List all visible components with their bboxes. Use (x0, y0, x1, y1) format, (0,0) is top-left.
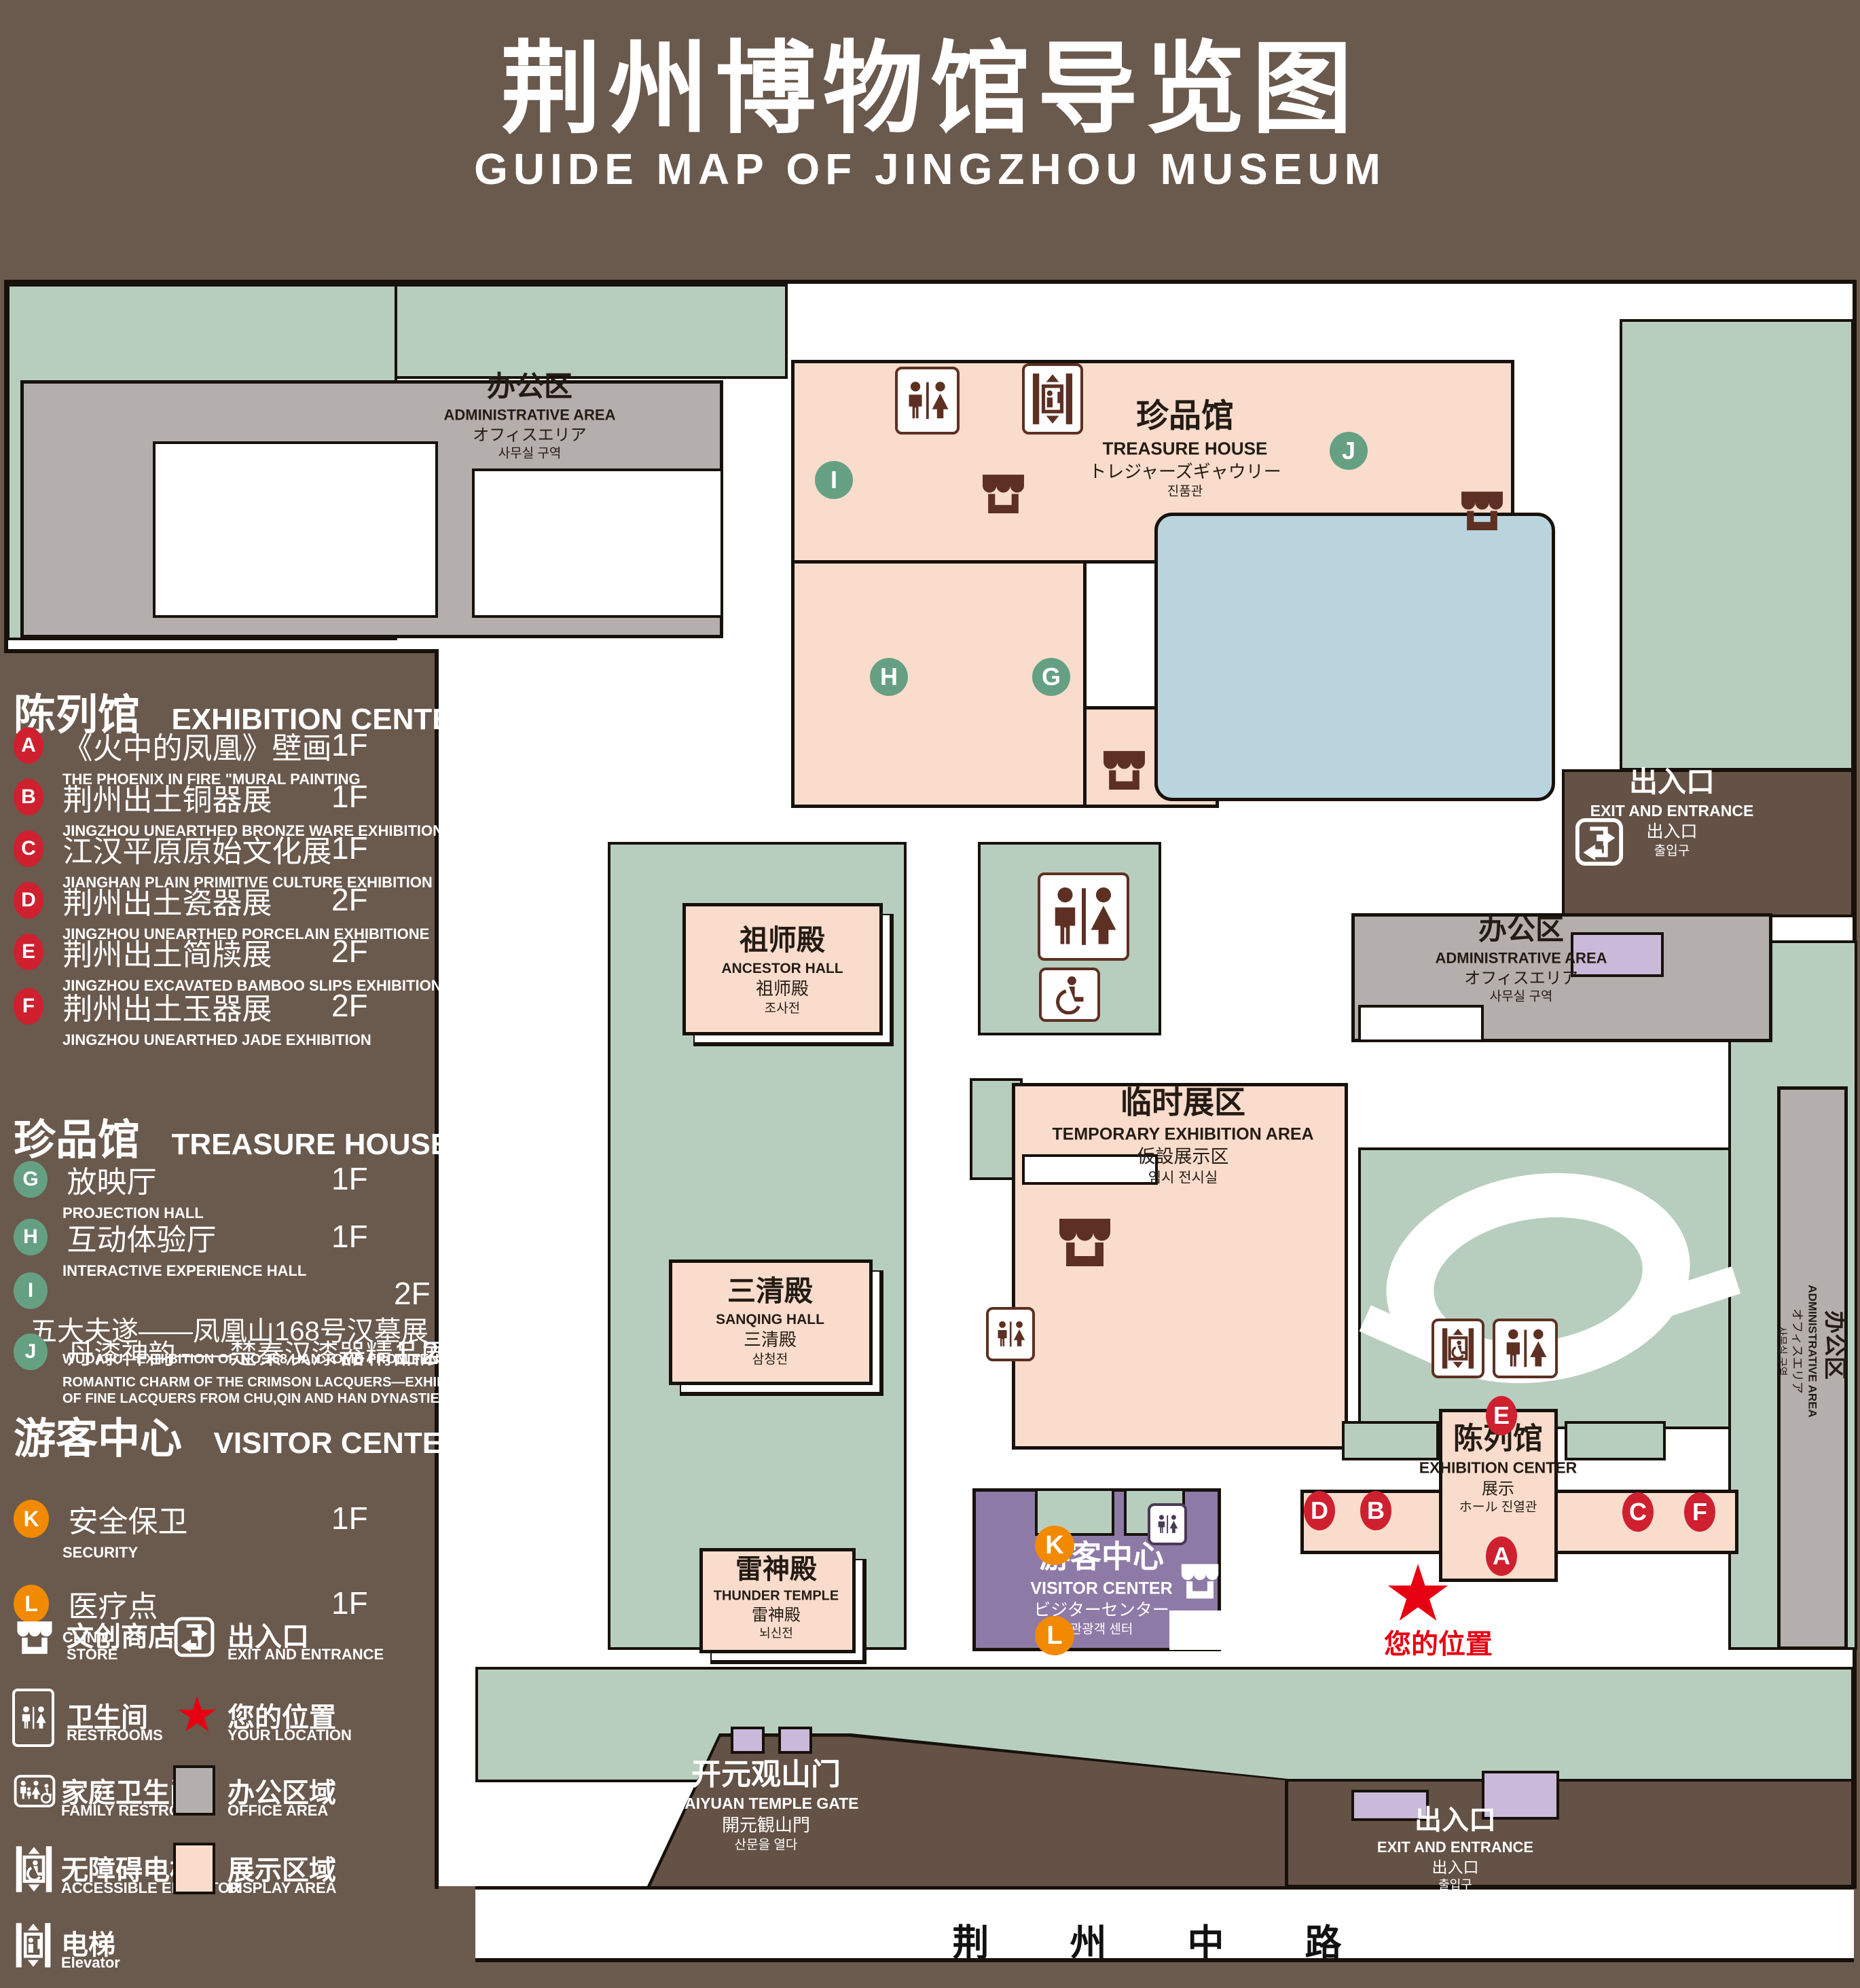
store-icon (1457, 489, 1508, 533)
item-zh: 放映厅 (67, 1166, 156, 1199)
label-sanqing-hall: 三清殿 SANQING HALL 三清殿 삼청전 (716, 1273, 824, 1368)
label-en: KAIYUAN TEMPLE GATE (673, 1794, 858, 1814)
restrooms-icon (12, 1689, 54, 1747)
item-floor: 1-2F (394, 1335, 458, 1372)
accessible-elevator-icon (14, 1841, 54, 1897)
label-ancestor-hall: 祖师殿 ANCESTOR HALL 祖师殿 조사전 (721, 922, 843, 1017)
label-jp: オフィスエリア (1436, 968, 1607, 989)
item-floor: 2F (331, 933, 368, 970)
item-zh: 丹漆神韵——楚秦汉漆器精品展 (67, 1340, 447, 1369)
marker-f: F (1684, 1492, 1715, 1532)
badge-i: I (14, 1272, 48, 1309)
marker-e: E (1486, 1396, 1517, 1435)
label-kr: ホール 진열관 (1419, 1500, 1578, 1517)
label-zh: 雷神殿 (714, 1552, 839, 1587)
label-en: ADMINISTRATIVE AREA (444, 405, 616, 425)
label-en: ADMINISTRATIVE AREA (1804, 1285, 1819, 1418)
legend-item-j: J 丹漆神韵——楚秦汉漆器精品展 1-2F ROMANTIC CHARM OF … (14, 1332, 462, 1407)
symbol-store-en: STORE (67, 1646, 117, 1663)
item-zh: 江汉平原原始文化展 (62, 835, 331, 868)
marker-c: C (1622, 1492, 1654, 1532)
legend-section-visitor-center: 游客中心 VISITOR CENTER (14, 1404, 464, 1465)
item-zh: 荆州出土简牍展 (62, 938, 272, 972)
label-en: SANQING HALL (716, 1310, 824, 1328)
label-zh: 办公区 (444, 368, 616, 405)
label-kr: 조사전 (721, 1001, 843, 1018)
exhibition-green-patch-right (1565, 1421, 1666, 1460)
item-floor: 1F (331, 1500, 368, 1536)
label-kr: 출입구 (1377, 1878, 1533, 1894)
symbol-elevator-en: Elevator (61, 1954, 120, 1972)
accessible-elevator-glyph (1439, 1326, 1477, 1371)
label-en: THUNDER TEMPLE (714, 1587, 839, 1605)
elevator-icon (1022, 363, 1083, 435)
label-kr: 사무실 구역 (1775, 1285, 1789, 1418)
store-glyph (1179, 1562, 1221, 1601)
label-en: TEMPORARY EXHIBITION AREA (1052, 1123, 1313, 1145)
admin-right-court (1358, 1005, 1484, 1042)
item-en: ROMANTIC CHARM OF THE CRIMSON LACQUERS—E… (62, 1375, 462, 1391)
label-exit-bottom: 出入口 EXIT AND ENTRANCE 出入口 출입구 (1377, 1803, 1533, 1894)
item-zh: 荆州出土瓷器展 (62, 887, 272, 920)
label-en: ANCESTOR HALL (721, 959, 843, 977)
badge-a: A (14, 727, 43, 764)
symbol-location-en: YOUR LOCATION (227, 1727, 352, 1744)
item-floor: 1F (331, 778, 368, 815)
symbol-office-en: OFFICE AREA (227, 1802, 328, 1820)
marker-a: A (1486, 1536, 1517, 1576)
badge-b: B (14, 779, 43, 815)
map-border-left-bottom (4, 649, 439, 653)
item-floor: 1F (331, 1218, 368, 1255)
badge-c: C (14, 830, 43, 867)
legend-item-f: F 荆州出土玉器展 2F JINGZHOU UNEARTHED JADE EXH… (14, 984, 462, 1049)
label-kr: 삼청전 (716, 1352, 824, 1369)
section-title-en: VISITOR CENTER (213, 1426, 463, 1460)
label-en: ADMINISTRATIVE AREA (1436, 949, 1607, 968)
admin-top-left-court-1 (153, 441, 438, 618)
label-en: EXIT AND ENTRANCE (1377, 1838, 1533, 1858)
store-glyph (15, 1614, 54, 1661)
door-glyph (173, 1610, 215, 1663)
store-glyph (978, 472, 1029, 516)
label-en: VISITOR CENTER (1030, 1577, 1172, 1600)
item-en: SECURITY (62, 1544, 462, 1562)
store-icon (1099, 748, 1150, 792)
label-zh2: 三清殿 (716, 1329, 824, 1352)
marker-k: K (1035, 1526, 1074, 1565)
accessible-elevator-icon (1432, 1319, 1484, 1378)
visitor-center-step (1169, 1610, 1224, 1650)
item-zh: 互动体验厅 (67, 1223, 216, 1257)
label-zh: 出入口 (1377, 1803, 1533, 1838)
marker-g: G (1032, 658, 1070, 696)
elevator-glyph (1029, 371, 1076, 427)
restrooms-icon (1038, 872, 1129, 961)
item-floor: 1F (331, 1160, 368, 1197)
label-temporary-exhibition: 临时展区 TEMPORARY EXHIBITION AREA 仮設展示区 임시 … (1052, 1083, 1313, 1188)
symbol-exit-en: EXIT AND ENTRANCE (227, 1646, 384, 1663)
restrooms-icon (895, 367, 960, 435)
store-glyph (1457, 489, 1508, 533)
gate-kiosk-left (731, 1727, 765, 1754)
accessible-elevator-glyph (14, 1841, 54, 1897)
store-glyph (1053, 1215, 1117, 1270)
label-zh: 出入口 (1590, 764, 1754, 801)
label-zh2: 出入口 (1377, 1858, 1533, 1878)
label-admin-top-left: 办公区 ADMINISTRATIVE AREA オフィスエリア 사무실 구역 (444, 368, 616, 462)
label-kr: 사무실 구역 (444, 446, 616, 463)
restrooms-icon (1148, 1503, 1187, 1545)
label-zh2: 祖师殿 (721, 978, 843, 1001)
marker-b: B (1360, 1491, 1391, 1530)
restrooms-icon (1493, 1319, 1558, 1378)
label-treasure-house: 珍品馆 TREASURE HOUSE トレジャーズギャウリー 진품관 (1089, 396, 1281, 501)
label-en: EXHIBITION CENTER (1419, 1458, 1578, 1479)
restrooms-glyph (1500, 1326, 1550, 1371)
item-floor: 1F (331, 1585, 368, 1621)
item-floor: 2F (331, 881, 368, 918)
item-zh: 安全保卫 (68, 1505, 187, 1539)
item-floor: 2F (331, 987, 368, 1024)
item-en: JINGZHOU UNEARTHED JADE EXHIBITION (62, 1031, 462, 1049)
restrooms-glyph (1155, 1511, 1180, 1538)
elevator-glyph (14, 1919, 53, 1972)
restrooms-glyph (18, 1695, 48, 1741)
label-jp: トレジャーズギャウリー (1089, 461, 1281, 484)
label-kr: 임시 전시실 (1052, 1169, 1313, 1188)
label-kr: 사무실 구역 (1436, 989, 1607, 1006)
badge-h: H (14, 1219, 48, 1255)
your-location-star: ★ (175, 1691, 219, 1739)
marker-h: H (870, 658, 908, 696)
label-kaiyuan-gate: 开元观山门 KAIYUAN TEMPLE GATE 開元観山門 산문을 열다 (673, 1755, 858, 1854)
marker-l: L (1035, 1616, 1074, 1655)
label-zh2: 雷神殿 (714, 1605, 839, 1626)
label-zh: 三清殿 (716, 1273, 824, 1310)
restrooms-glyph (993, 1314, 1027, 1354)
store-glyph (1099, 748, 1150, 792)
item-floor: 1F (331, 830, 368, 866)
label-zh: 珍品馆 (1089, 396, 1281, 438)
store-icon (15, 1614, 54, 1661)
restrooms-glyph (902, 374, 952, 427)
family-restrooms-icon (14, 1764, 56, 1818)
label-kr: 뇌신전 (714, 1626, 839, 1642)
family-restrooms-glyph (14, 1764, 56, 1818)
restrooms-glyph (1045, 880, 1122, 953)
symbol-restrooms-en: RESTROOMS (67, 1727, 163, 1744)
road-label: 荆 州 中 路 (475, 1913, 1854, 1966)
badge-e: E (14, 934, 43, 970)
legend-item-k: K 安全保卫 1F SECURITY (14, 1497, 462, 1562)
badge-j: J (14, 1333, 48, 1370)
item-floor: 2F (394, 1275, 431, 1312)
label-jp: 展示 (1419, 1479, 1578, 1500)
accessible-restroom-icon (1039, 968, 1100, 1022)
store-icon (978, 472, 1029, 516)
your-location-label: 您的位置 (1384, 1622, 1493, 1661)
admin-top-left-court-2 (472, 468, 723, 618)
label-jp: オフィスエリア (1789, 1285, 1804, 1418)
store-icon (1179, 1562, 1221, 1601)
item-zh: 荆州出土玉器展 (62, 993, 272, 1026)
label-zh: 开元观山门 (673, 1755, 858, 1794)
exit-entrance-icon (173, 1610, 215, 1663)
label-kr: 산문을 열다 (673, 1837, 858, 1854)
display-area-swatch (173, 1843, 215, 1894)
marker-d: D (1304, 1491, 1335, 1530)
label-kr: 진품관 (1089, 484, 1281, 501)
label-thunder-temple: 雷神殿 THUNDER TEMPLE 雷神殿 뇌신전 (714, 1552, 839, 1642)
label-jp: オフィスエリア (444, 425, 616, 446)
section-title-zh: 珍品馆 (14, 1117, 140, 1164)
badge-d: D (14, 882, 43, 919)
door-glyph (1574, 813, 1624, 870)
road-jingzhou-middle: 荆 州 中 路 (475, 1886, 1854, 1962)
page-title: 荆州博物馆导览图 (0, 7, 1860, 153)
item-zh: 《火中的凤凰》壁画 (62, 732, 331, 765)
exit-entrance-icon (1574, 813, 1624, 870)
label-admin-right-strip: 办公区 ADMINISTRATIVE AREA オフィスエリア 사무실 구역 (1775, 1285, 1849, 1418)
label-jp: 仮設展示区 (1052, 1145, 1313, 1169)
section-title-en: TREASURE HOUSE (171, 1128, 450, 1161)
label-zh: 办公区 (1436, 911, 1607, 949)
wheelchair-glyph (1046, 975, 1093, 1014)
page-subtitle: GUIDE MAP OF JINGZHOU MUSEUM (0, 144, 1860, 194)
badge-f: F (14, 988, 43, 1025)
restrooms-icon (986, 1307, 1035, 1361)
label-zh: 办公区 (1819, 1310, 1849, 1380)
pond (1154, 513, 1555, 801)
label-admin-right: 办公区 ADMINISTRATIVE AREA オフィスエリア 사무실 구역 (1436, 911, 1607, 1006)
label-zh: 临时展区 (1052, 1083, 1313, 1124)
badge-k: K (14, 1500, 49, 1538)
label-zh: 祖师殿 (721, 922, 843, 959)
marker-j: J (1330, 432, 1368, 470)
gate-kiosk-right (778, 1727, 812, 1754)
green-top-right-block (1620, 319, 1854, 771)
elevator-icon (14, 1919, 53, 1972)
legend-item-g: G 放映厅 1F PROJECTION HALL (14, 1158, 462, 1222)
item-zh: 荆州出土铜器展 (62, 784, 272, 817)
label-en: TREASURE HOUSE (1089, 438, 1281, 461)
legend-item-h: H 互动体验厅 1F INTERACTIVE EXPERIENCE HALL (14, 1215, 462, 1280)
label-jp: 開元観山門 (673, 1814, 858, 1837)
office-area-swatch (173, 1765, 215, 1816)
item-floor: 1F (331, 726, 368, 763)
store-icon (1053, 1215, 1117, 1270)
section-title-zh: 游客中心 (14, 1416, 182, 1462)
symbol-display-en: DISPLAY AREA (227, 1879, 337, 1897)
badge-g: G (14, 1161, 48, 1198)
marker-i: I (815, 461, 853, 499)
